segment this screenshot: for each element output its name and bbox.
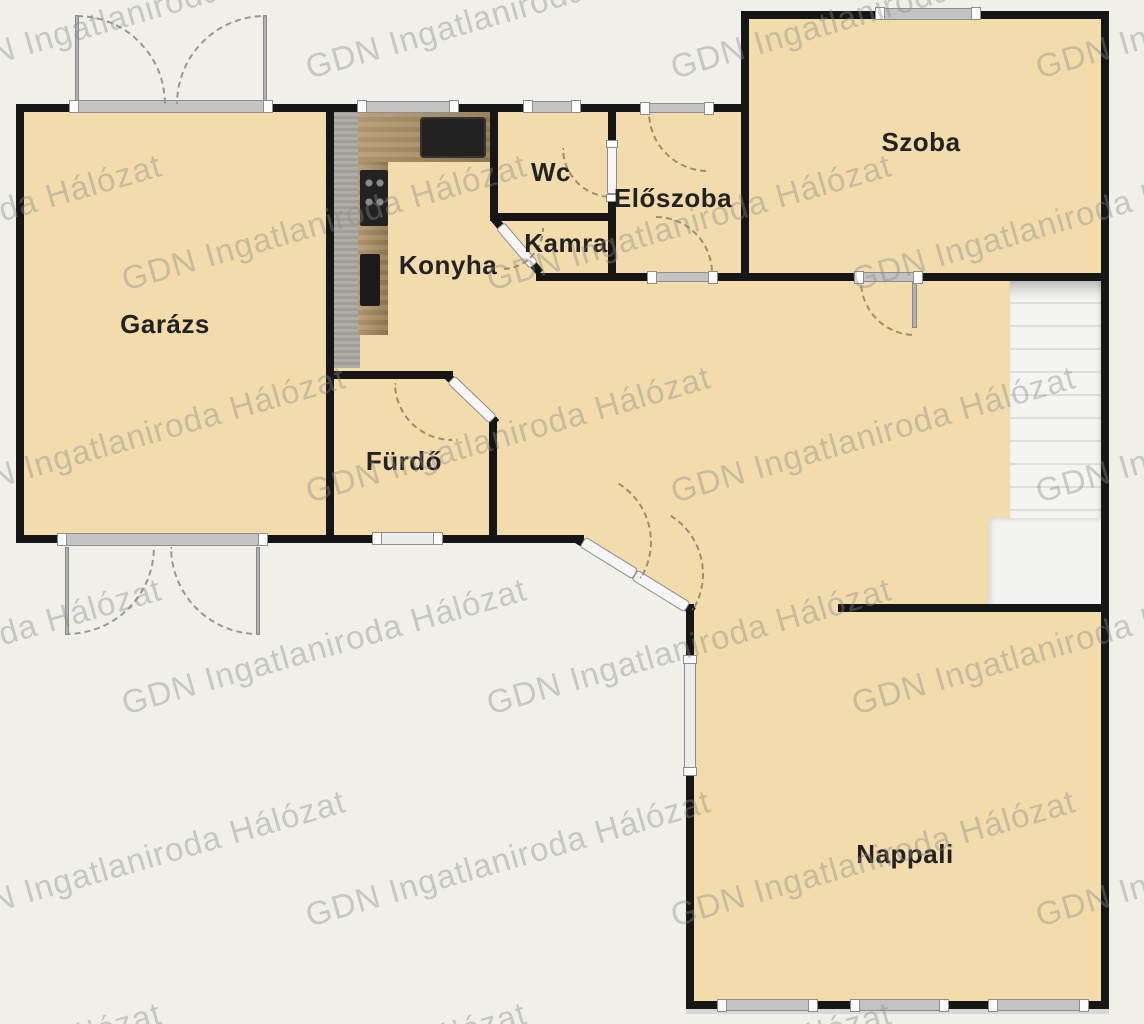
window-cap (571, 100, 581, 113)
staircase-landing (988, 518, 1103, 608)
window-cap (808, 999, 818, 1012)
watermark-text: GDN Ingatlaniroda Hálózat (118, 572, 530, 719)
wall-wc-south (490, 213, 616, 221)
window-cap (717, 999, 727, 1012)
wall-furdo-east (489, 417, 497, 543)
room-label-konyha: Konyha (399, 252, 497, 278)
kitchen-counter-worktop (334, 112, 360, 368)
wall-eloszoba-szoba (741, 11, 749, 281)
watermark-text: GDN Ingatlaniroda Hálózat (302, 0, 714, 84)
window-cap (850, 999, 860, 1012)
window-cap (1079, 999, 1089, 1012)
staircase-icon (1010, 281, 1101, 520)
room-szoba-floor (745, 19, 1101, 112)
frame-cap (69, 100, 79, 113)
kitchen-stove-icon (360, 170, 388, 226)
watermark-text: GDN Ingatlaniroda Hálózat (0, 996, 165, 1024)
window-cap (683, 767, 697, 776)
furdo-window (378, 532, 437, 545)
window-cap (449, 100, 459, 113)
room-label-furdo: Fürdő (366, 448, 442, 474)
frame-cap (606, 140, 618, 148)
wall-east (1101, 11, 1109, 1009)
kitchen-cabinet-icon (360, 254, 380, 306)
frame-cap (57, 533, 67, 546)
window-cap (988, 999, 998, 1012)
frame-cap (640, 102, 650, 115)
nappali-south-window-3 (993, 999, 1083, 1011)
wall-nappali-north (838, 604, 1109, 612)
kitchen-sink-icon (420, 117, 486, 158)
wall-west-garage (16, 104, 24, 543)
wall-garage-kitchen (326, 104, 334, 543)
room-label-wc: Wc (531, 159, 571, 185)
frame-cap (258, 533, 268, 546)
window-cap (357, 100, 367, 113)
wc-window (528, 101, 575, 113)
room-label-kamra: Kamra (524, 230, 607, 256)
room-nappali-floor (694, 608, 1101, 1005)
szoba-window (880, 8, 975, 20)
wall-hall-north (536, 273, 1109, 281)
kitchen-window (362, 101, 453, 113)
frame-cap (854, 271, 864, 284)
nappali-south-window-1 (722, 999, 812, 1011)
wall-kitchen-wc (490, 104, 498, 221)
window-cap (875, 7, 885, 20)
door-swing-arc (176, 15, 265, 104)
window-cap (372, 532, 382, 545)
eloszoba-south-door-frame (652, 272, 712, 282)
room-label-nappali: Nappali (856, 841, 953, 867)
window-cap (939, 999, 949, 1012)
garage-south-door-frame (63, 533, 262, 546)
frame-cap (647, 271, 657, 284)
nappali-south-window-2 (855, 999, 943, 1011)
frame-cap (913, 271, 923, 284)
window-cap (971, 7, 981, 20)
frame-cap (263, 100, 273, 113)
nappali-west-window (684, 663, 696, 768)
window-cap (523, 100, 533, 113)
watermark-text: GDN Ingatlaniroda Hálózat (0, 784, 349, 931)
floor-plan-image: Garázs Konyha Wc Előszoba Kamra Szoba Fü… (0, 0, 1144, 1024)
door-swing-arc (77, 15, 166, 104)
door-swing-arc (67, 547, 155, 635)
window-cap (433, 532, 443, 545)
watermark-text: GDN Ingatlaniroda Hálózat (302, 784, 714, 931)
window-cap (683, 655, 697, 664)
wall-furdo-north (326, 371, 453, 379)
room-label-eloszoba: Előszoba (614, 185, 732, 211)
room-label-szoba: Szoba (881, 129, 960, 155)
room-label-garazs: Garázs (120, 311, 210, 337)
frame-cap (708, 271, 718, 284)
watermark-text: GDN Ingatlaniroda Hálózat (0, 0, 349, 84)
frame-cap (704, 102, 714, 115)
door-swing-arc (170, 547, 258, 635)
watermark-text: GDN Ingatlaniroda Hálózat (118, 996, 530, 1024)
